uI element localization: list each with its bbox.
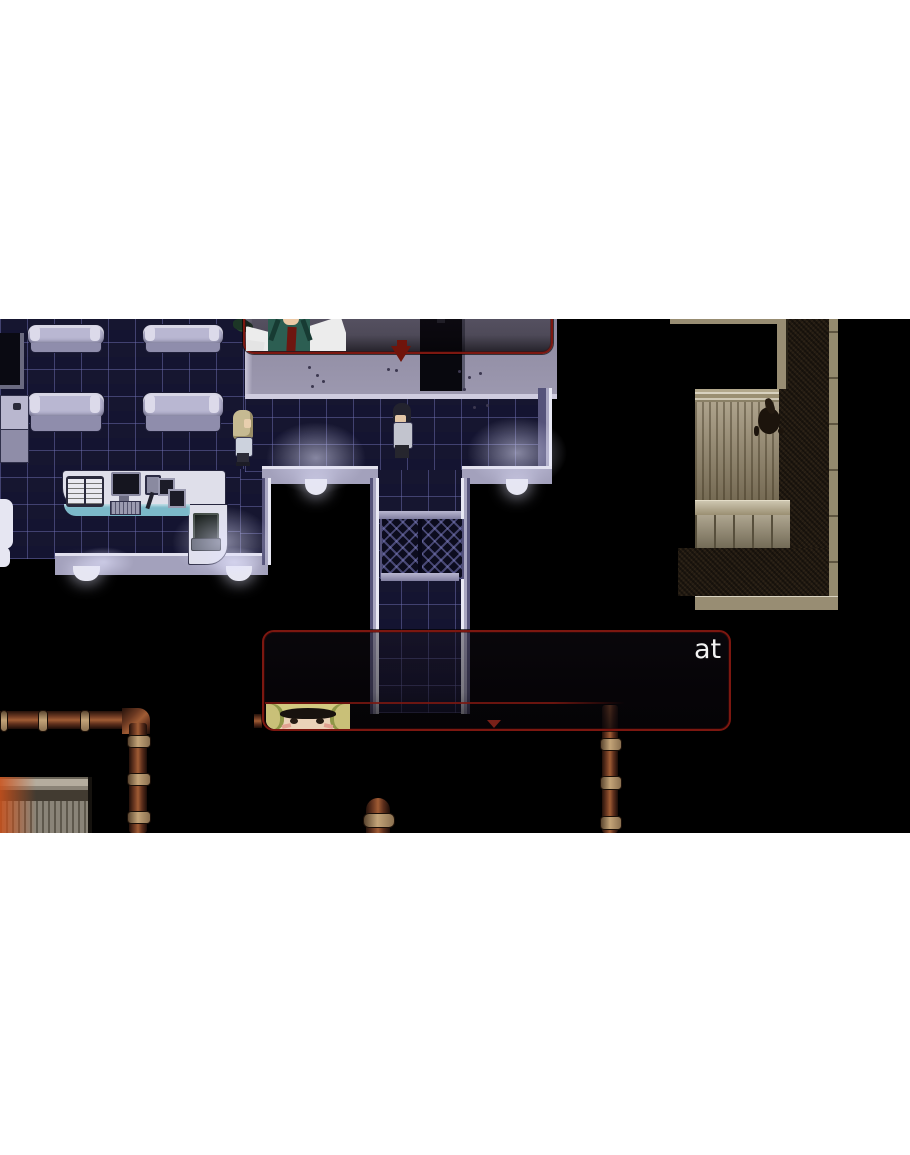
hospital-bed: [27, 324, 105, 352]
wall-fixture: [0, 547, 10, 567]
plank-wall-low-rail: [695, 500, 790, 516]
metal-gate[interactable]: [379, 511, 461, 589]
desk-monitor: [111, 472, 141, 496]
portrait-doctor: [246, 319, 346, 351]
orange-glow: [0, 777, 36, 833]
corridor-lamp: [506, 479, 528, 495]
pipe-joint: [600, 776, 622, 790]
pipe-stub: [254, 714, 262, 728]
rusty-doorway: [0, 777, 92, 833]
keyboard: [110, 501, 141, 515]
pipe-joint: [127, 811, 151, 824]
eye: [316, 718, 324, 724]
pipe-joint: [80, 710, 90, 732]
open-book: [66, 476, 104, 507]
brown-floor: [678, 548, 830, 596]
wall-speck: [479, 372, 482, 375]
hospital-bed: [27, 392, 105, 431]
pipe-joint: [38, 710, 48, 732]
wall-speck: [387, 368, 390, 371]
wall-speck: [463, 388, 466, 391]
npc-legs: [395, 445, 409, 458]
pipe-joint: [600, 738, 622, 751]
npc-feet: [236, 462, 250, 466]
eye: [290, 718, 298, 724]
tan-wall-top-bar: [670, 319, 786, 324]
wall-window: [0, 333, 24, 389]
character-blonde-npc[interactable]: [233, 408, 253, 466]
character-dark-haired-npc[interactable]: [392, 403, 412, 462]
dialogue-text: at: [694, 635, 721, 665]
wall-speck: [311, 385, 314, 388]
hospital-bed: [142, 392, 224, 431]
coat-arm: [246, 340, 265, 351]
wall-lamp: [73, 566, 100, 581]
panel-base: [695, 515, 790, 548]
screenshot-page: at: [0, 0, 910, 1155]
cabinet: [0, 395, 29, 431]
corridor-lamp: [305, 479, 327, 495]
pipe-joint: [363, 813, 395, 828]
wall-lamp: [226, 566, 252, 581]
pipe-joint: [600, 816, 622, 830]
dark-stain: [752, 398, 782, 442]
hospital-bed: [142, 324, 224, 352]
shadow-band: [280, 708, 336, 719]
wall-speck: [316, 374, 319, 377]
tan-wall-right-strip: [829, 319, 838, 609]
cabinet-handle: [13, 403, 21, 410]
tan-wall-bottom-strip: [695, 596, 838, 610]
event-arrow-icon: [391, 346, 411, 362]
wall-speck: [473, 406, 476, 409]
wall-speck: [486, 404, 489, 407]
wall-fixture: [0, 499, 13, 549]
pipe-joint: [0, 710, 8, 732]
tan-wall-corner: [777, 319, 788, 389]
continue-indicator-icon[interactable]: [487, 720, 501, 728]
dialogue-box-bottom[interactable]: at: [262, 630, 731, 731]
npc-face: [244, 419, 251, 428]
wall-speck: [458, 370, 461, 373]
wall-speck: [308, 366, 311, 369]
game-viewport[interactable]: at: [0, 319, 910, 833]
wall-speck: [468, 376, 471, 379]
red-tie: [286, 327, 296, 351]
portrait-blonde: [266, 704, 350, 729]
photo-frame: [168, 489, 186, 508]
pipe-joint: [127, 735, 151, 748]
ward-east-trim: [262, 478, 271, 565]
wall-speck: [395, 369, 398, 372]
east-wall-trim: [538, 388, 552, 472]
cabinet-lower: [0, 429, 29, 463]
pipe-joint: [127, 773, 151, 786]
wall-speck: [322, 380, 325, 383]
laptop-base: [191, 538, 221, 551]
pipe-horizontal: [0, 711, 130, 729]
